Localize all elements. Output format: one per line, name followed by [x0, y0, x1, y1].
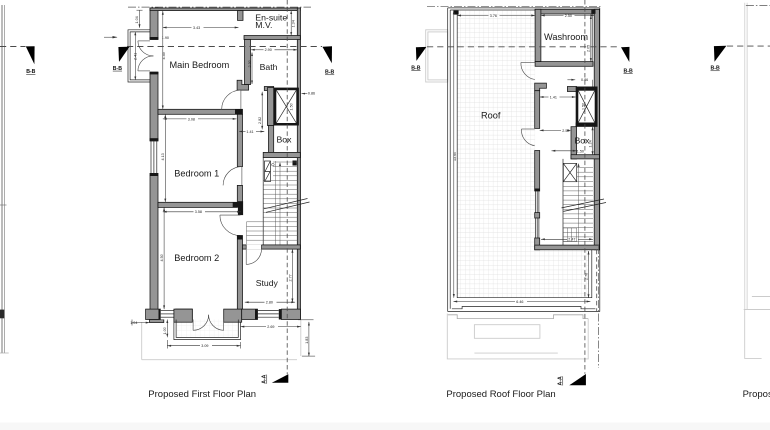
svg-text:A-A: A-A: [558, 376, 564, 385]
svg-text:2.80: 2.80: [266, 301, 273, 305]
svg-text:Bath: Bath: [260, 62, 278, 72]
svg-text:2.41: 2.41: [134, 53, 138, 60]
svg-text:3.76: 3.76: [490, 14, 497, 18]
svg-text:1.50: 1.50: [289, 103, 293, 110]
svg-text:2.82: 2.82: [258, 117, 262, 124]
svg-text:B-B: B-B: [411, 65, 420, 71]
svg-text:Propos: Propos: [743, 389, 770, 400]
svg-text:4.13: 4.13: [161, 153, 165, 160]
svg-text:2.05: 2.05: [587, 45, 591, 52]
svg-text:Proposed Roof Floor Plan: Proposed Roof Floor Plan: [446, 389, 555, 400]
svg-text:2.50: 2.50: [562, 129, 569, 133]
svg-text:2.77: 2.77: [288, 274, 292, 281]
svg-text:Bedroom 2: Bedroom 2: [174, 253, 219, 263]
svg-text:Box: Box: [277, 135, 293, 145]
svg-text:Study: Study: [256, 278, 279, 288]
svg-text:4.49: 4.49: [162, 52, 166, 59]
svg-text:A-A: A-A: [262, 374, 268, 383]
svg-text:M.V.: M.V.: [255, 20, 272, 30]
svg-text:1.04: 1.04: [135, 16, 139, 23]
svg-text:6.46: 6.46: [516, 300, 523, 304]
svg-text:3.09: 3.09: [201, 344, 208, 348]
svg-text:3.08: 3.08: [188, 117, 195, 121]
svg-text:1.50: 1.50: [577, 149, 584, 153]
svg-text:Proposed First Floor Plan: Proposed First Floor Plan: [148, 389, 256, 400]
svg-text:3.43: 3.43: [193, 26, 200, 30]
svg-text:B-B: B-B: [711, 66, 720, 72]
svg-text:1.83: 1.83: [305, 337, 309, 344]
svg-text:13.60: 13.60: [453, 152, 457, 161]
svg-text:Washroom: Washroom: [544, 32, 588, 42]
svg-text:1.41: 1.41: [246, 130, 253, 134]
svg-text:2.69: 2.69: [267, 325, 274, 329]
svg-text:1.04: 1.04: [130, 321, 137, 325]
svg-text:Bedroom 1: Bedroom 1: [174, 169, 219, 179]
svg-text:2.50: 2.50: [565, 14, 572, 18]
svg-text:2.30: 2.30: [248, 60, 252, 67]
svg-text:1.34: 1.34: [292, 20, 296, 27]
svg-text:3.58: 3.58: [195, 210, 202, 214]
svg-text:1.24: 1.24: [588, 140, 592, 147]
svg-text:B-B: B-B: [325, 70, 334, 76]
svg-text:B-B: B-B: [26, 69, 35, 75]
svg-text:B-B: B-B: [624, 68, 633, 74]
svg-text:2.90: 2.90: [265, 48, 272, 52]
svg-text:1.41: 1.41: [550, 95, 557, 99]
svg-text:1.00: 1.00: [163, 327, 167, 334]
svg-text:0.86: 0.86: [308, 92, 315, 96]
svg-text:B-B: B-B: [113, 66, 122, 72]
svg-text:Roof: Roof: [481, 111, 501, 121]
svg-text:2.47: 2.47: [568, 238, 575, 242]
svg-text:4.50: 4.50: [160, 254, 164, 261]
svg-text:Main Bedroom: Main Bedroom: [170, 60, 230, 70]
